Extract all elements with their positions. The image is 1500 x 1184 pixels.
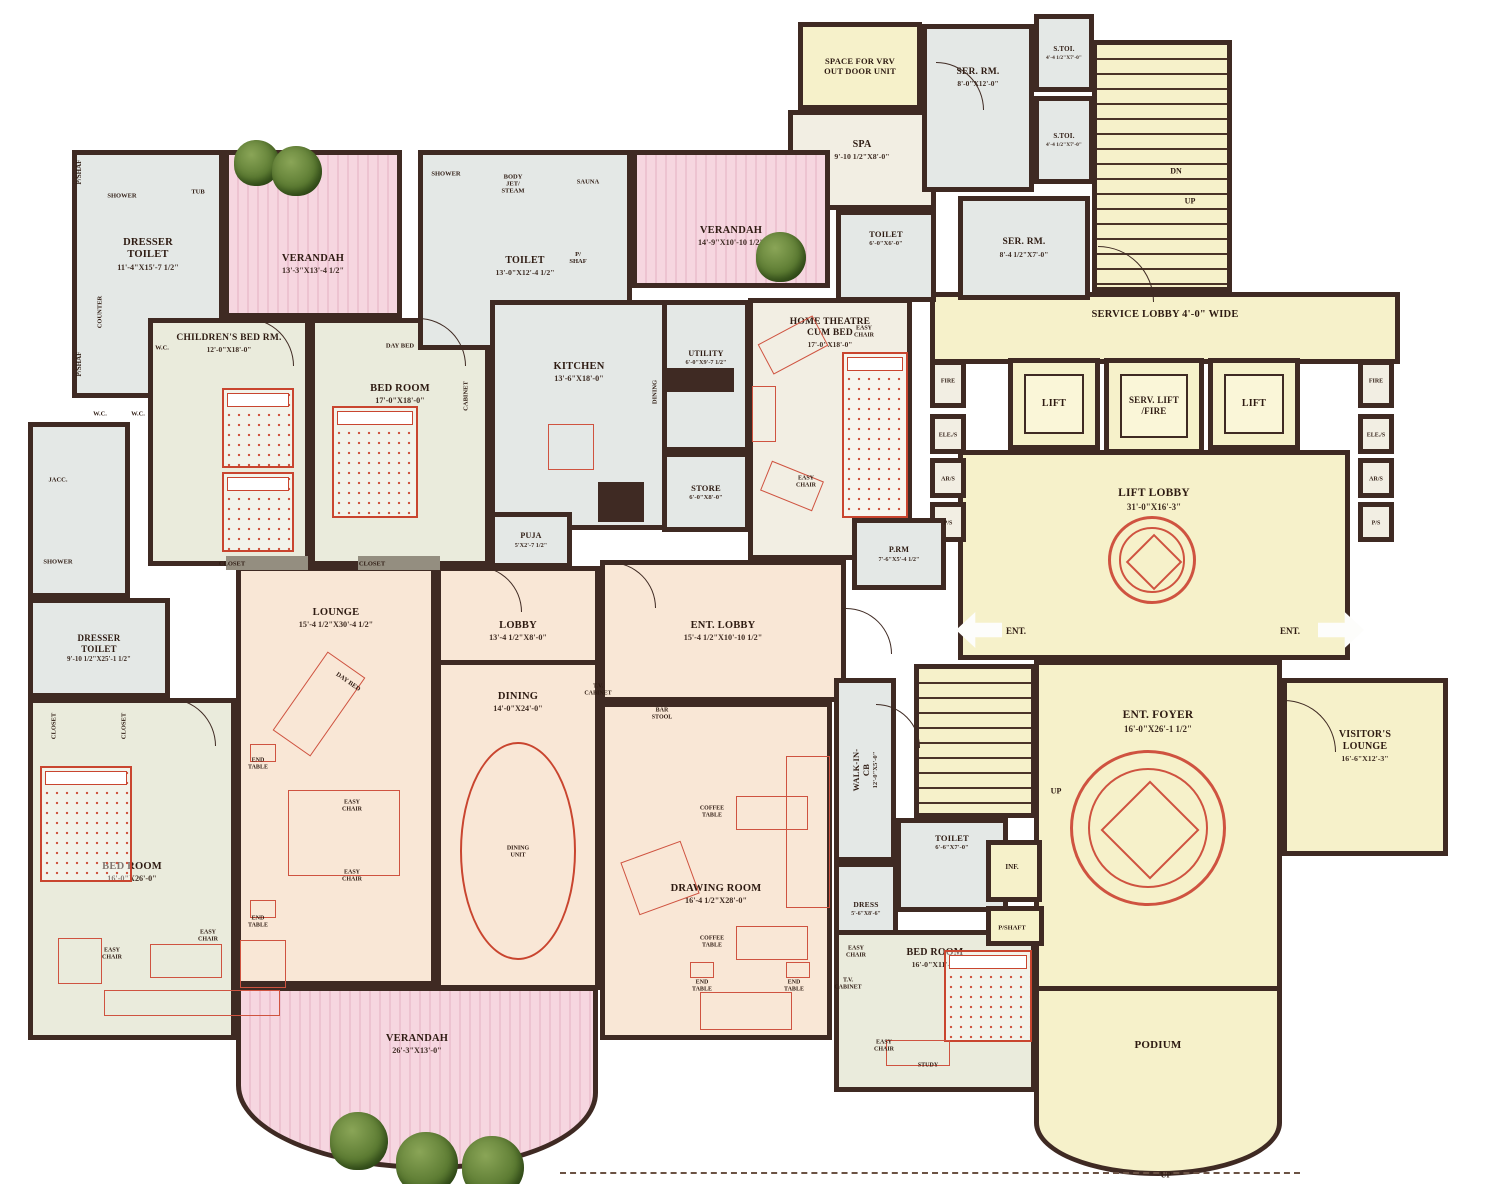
- bed-shape: [842, 352, 908, 518]
- room-dims: 13'-6"X18'-0": [554, 374, 603, 383]
- room-dims: 17'-0"X18'-0": [375, 396, 424, 405]
- plan-label: P/S: [1372, 521, 1381, 528]
- room-dims: 6'-0"X9'-7 1/2": [685, 359, 726, 366]
- plan-label: EASY CHAIR: [874, 1039, 894, 1052]
- plan-label: P/SHAF: [76, 352, 84, 377]
- plan-label: P/ SHAF: [569, 251, 586, 265]
- plan-label: FIRE: [1369, 379, 1383, 386]
- rbox-shape: [548, 424, 594, 470]
- rbox-shape: [752, 386, 776, 442]
- plan-label: BODY JET/ STEAM: [501, 173, 524, 194]
- room-name: STORE: [691, 483, 721, 493]
- plan-label: CLOSET: [219, 560, 245, 567]
- plan-label: COFFEE TABLE: [700, 935, 724, 948]
- rbox-shape: [690, 962, 714, 978]
- room-dims: 13'-0"X12'-4 1/2": [495, 268, 554, 277]
- plan-label: COFFEE TABLE: [700, 805, 724, 818]
- plan-label: ENT.: [1280, 627, 1300, 637]
- plan-label: INF.: [1005, 864, 1018, 872]
- room-name: SER. RM.: [1002, 237, 1045, 248]
- plan-label: P/SHAF: [76, 160, 84, 185]
- rbox-shape: [700, 992, 792, 1030]
- tree-shape: [330, 1112, 388, 1170]
- rbox-shape: [736, 796, 808, 830]
- room-dims: 4'-4 1/2"X7'-0": [1046, 55, 1082, 61]
- dbox-shape: [598, 482, 644, 522]
- plan-label: AR/S: [1369, 477, 1383, 484]
- dbox-shape: [664, 368, 734, 392]
- room-name: TOILET: [935, 833, 969, 843]
- room-name: S.TOI.: [1053, 45, 1074, 53]
- plan-label: END TABLE: [248, 915, 268, 928]
- plan-label: COUNTER: [96, 296, 103, 329]
- plan-label: JACC.: [49, 476, 68, 483]
- plan-label: EASY CHAIR: [102, 947, 122, 960]
- room-name: VERANDAH: [282, 253, 344, 265]
- room-name: DRESSER TOILET: [123, 237, 173, 262]
- room-dims: 5'-6"X8'-6": [851, 911, 881, 917]
- room-dims: 31'-0"X16'-3": [1127, 502, 1181, 512]
- plan-label: ELE./S: [939, 433, 958, 440]
- room-p-rm: P.RM7'-6"X5'-4 1/2": [852, 518, 946, 590]
- room-name: WALK-IN-CB: [851, 744, 871, 796]
- plan-label: EASY CHAIR: [342, 869, 362, 882]
- tree-shape: [272, 146, 322, 196]
- plan-label: SHOWER: [107, 192, 136, 199]
- room-ser-rm-2: SER. RM.8'-4 1/2"X7'-0": [958, 196, 1090, 300]
- room-service-lobby: SERVICE LOBBY 4'-0" WIDE: [930, 292, 1400, 364]
- bed-shape: [944, 950, 1032, 1042]
- room-name: TOILET: [869, 229, 903, 239]
- room-stairs-mid: [914, 664, 1036, 818]
- plan-label: CABINET: [462, 381, 469, 411]
- room-toilet-spa: TOILET6'-0"X6'-0": [836, 210, 936, 302]
- rbox-shape: [240, 940, 286, 988]
- plan-label: CLOSET: [50, 713, 57, 739]
- plan-label: T.V. CABINET: [834, 977, 861, 990]
- medallion-shape: [1070, 750, 1226, 906]
- plan-label: P/S: [944, 521, 953, 528]
- rbox-shape: [786, 962, 810, 978]
- bed-shape: [222, 388, 294, 468]
- room-dresser-toilet-2: DRESSER TOILET9'-10 1/2"X25'-1 1/2": [28, 598, 170, 698]
- rbox-shape: [58, 938, 102, 984]
- plan-label: EASY CHAIR: [796, 475, 816, 488]
- room-name: P.RM: [889, 545, 909, 554]
- room-s-toi-2: S.TOI.4'-4 1/2"X7'-0": [1034, 96, 1094, 184]
- room-dims: 15'-4 1/2"X30'-4 1/2": [299, 620, 373, 629]
- rbox-shape: [736, 926, 808, 960]
- room-name: PUJA: [520, 531, 541, 540]
- plan-label: ENT.: [1006, 627, 1026, 637]
- plan-label: P/SHAFT: [998, 924, 1025, 931]
- plan-label: T.V. CABINET: [584, 683, 611, 696]
- room-name: S.TOI.: [1053, 132, 1074, 140]
- floor-plan: SERVICE LOBBY 4'-0" WIDELIFT LOBBY31'-0"…: [0, 0, 1500, 1184]
- plan-label: TUB: [191, 188, 204, 195]
- room-name: LIFT: [1042, 398, 1066, 410]
- plan-label: ELE./S: [1367, 433, 1386, 440]
- plan-label: EASY CHAIR: [854, 325, 874, 338]
- rbox-shape: [150, 944, 222, 978]
- plan-label: CLOSET: [120, 713, 127, 739]
- room-name: KITCHEN: [554, 361, 605, 373]
- room-vrv-space: SPACE FOR VRV OUT DOOR UNIT: [798, 22, 922, 110]
- plan-label: UP: [1161, 1172, 1172, 1181]
- room-dims: 12'-0"X5'-0": [872, 752, 879, 789]
- room-dims: 16'-6"X12'-3": [1341, 754, 1388, 763]
- room-name: SPACE FOR VRV OUT DOOR UNIT: [824, 56, 896, 76]
- plan-label: EASY CHAIR: [198, 929, 218, 942]
- room-dims: 26'-3"X13'-0": [392, 1046, 441, 1055]
- room-dims: 16'-0"X26'-1 1/2": [1124, 724, 1192, 734]
- room-dims: 5'X2'-7 1/2": [515, 542, 547, 549]
- room-dims: 6'-0"X6'-0": [869, 240, 902, 247]
- room-dims: 7'-6"X5'-4 1/2": [878, 556, 919, 563]
- room-name: SERV. LIFT /FIRE: [1129, 395, 1179, 416]
- plan-label: DINING UNIT: [507, 845, 529, 858]
- room-name: SERVICE LOBBY 4'-0" WIDE: [1091, 309, 1238, 321]
- room-name: DINING: [498, 691, 538, 703]
- room-name: ENT. FOYER: [1123, 709, 1194, 723]
- arc-shape: [846, 608, 892, 654]
- room-s-toi-1: S.TOI.4'-4 1/2"X7'-0": [1034, 14, 1094, 92]
- room-name: LIFT: [1242, 398, 1266, 410]
- room-dims: 16'-4 1/2"X28'-0": [685, 896, 747, 905]
- plan-label: EASY CHAIR: [846, 945, 866, 958]
- room-dims: 9'-10 1/2"X8'-0": [834, 152, 889, 161]
- room-dims: 6'-6"X7'-0": [935, 844, 968, 851]
- plan-label: END TABLE: [784, 979, 804, 992]
- plan-label: SHOWER: [431, 170, 460, 177]
- room-jacuzzi-room: [28, 422, 130, 598]
- medallion-shape: [1108, 516, 1196, 604]
- room-name: LIFT LOBBY: [1118, 487, 1190, 501]
- plan-label: SAUNA: [577, 178, 599, 185]
- room-name: ENT. LOBBY: [691, 620, 756, 632]
- room-name: SPA: [853, 139, 872, 151]
- plan-label: STUDY: [918, 1063, 938, 1070]
- rbox-shape: [786, 756, 830, 908]
- room-name: PODIUM: [1134, 1039, 1181, 1052]
- bed-shape: [40, 766, 132, 882]
- tree-shape: [756, 232, 806, 282]
- plan-label: BAR STOOL: [652, 707, 673, 720]
- room-puja: PUJA5'X2'-7 1/2": [490, 512, 572, 568]
- room-dims: 4'-4 1/2"X7'-0": [1046, 142, 1082, 148]
- room-dims: 15'-4 1/2"X10'-10 1/2": [684, 633, 763, 642]
- room-name: VERANDAH: [700, 225, 762, 237]
- room-dims: 13'-3"X13'-4 1/2": [282, 266, 344, 275]
- room-dims: 14'-0"X24'-0": [493, 704, 542, 713]
- plan-label: W.C.: [155, 344, 169, 351]
- plan-label: DN: [1170, 168, 1182, 177]
- room-dims: 9'-10 1/2"X25'-1 1/2": [67, 655, 131, 663]
- plan-label: DAY BED: [386, 342, 414, 349]
- room-lift-1: LIFT: [1008, 358, 1100, 450]
- plan-label: UP: [1051, 788, 1062, 797]
- room-name: LOUNGE: [313, 607, 360, 619]
- room-lift-2: LIFT: [1208, 358, 1300, 450]
- bed-shape: [332, 406, 418, 518]
- room-dims: 14'-9"X10'-10 1/2": [698, 238, 764, 247]
- room-name: DRESSER TOILET: [78, 633, 121, 654]
- bed-shape: [222, 472, 294, 552]
- plan-label: END TABLE: [692, 979, 712, 992]
- room-dims: 8'-4 1/2"X7'-0": [1000, 250, 1049, 259]
- room-name: UTILITY: [688, 349, 723, 358]
- room-name: VISITOR'S LOUNGE: [1339, 729, 1391, 753]
- plan-label: EASY CHAIR: [342, 799, 362, 812]
- plan-label: W.C.: [131, 410, 145, 417]
- plan-label: AR/S: [941, 477, 955, 484]
- plan-label: UP: [1185, 198, 1196, 207]
- room-serv-lift: SERV. LIFT /FIRE: [1104, 358, 1204, 454]
- dashh-shape: [560, 1172, 1300, 1174]
- room-name: LOBBY: [499, 620, 537, 632]
- room-store: STORE6'-0"X8'-0": [662, 452, 750, 532]
- plan-label: SHOWER: [43, 558, 72, 565]
- room-name: BED ROOM: [370, 383, 430, 395]
- plan-label: CLOSET: [359, 560, 385, 567]
- room-name: VERANDAH: [386, 1033, 448, 1045]
- plan-label: DINING: [651, 380, 658, 404]
- room-dims: 12'-0"X18'-0": [207, 345, 252, 354]
- room-name: DRESS: [853, 901, 878, 910]
- plan-label: END TABLE: [248, 757, 268, 770]
- room-dims: 6'-0"X8'-0": [689, 494, 722, 501]
- room-name: TOILET: [505, 255, 544, 267]
- room-dims: 11'-4"X15'-7 1/2": [117, 263, 179, 272]
- room-podium: PODIUM: [1034, 986, 1282, 1176]
- plan-label: W.C.: [93, 410, 107, 417]
- plan-label: FIRE: [941, 379, 955, 386]
- rbox-shape: [104, 990, 280, 1016]
- room-dims: 13'-4 1/2"X8'-0": [489, 633, 547, 642]
